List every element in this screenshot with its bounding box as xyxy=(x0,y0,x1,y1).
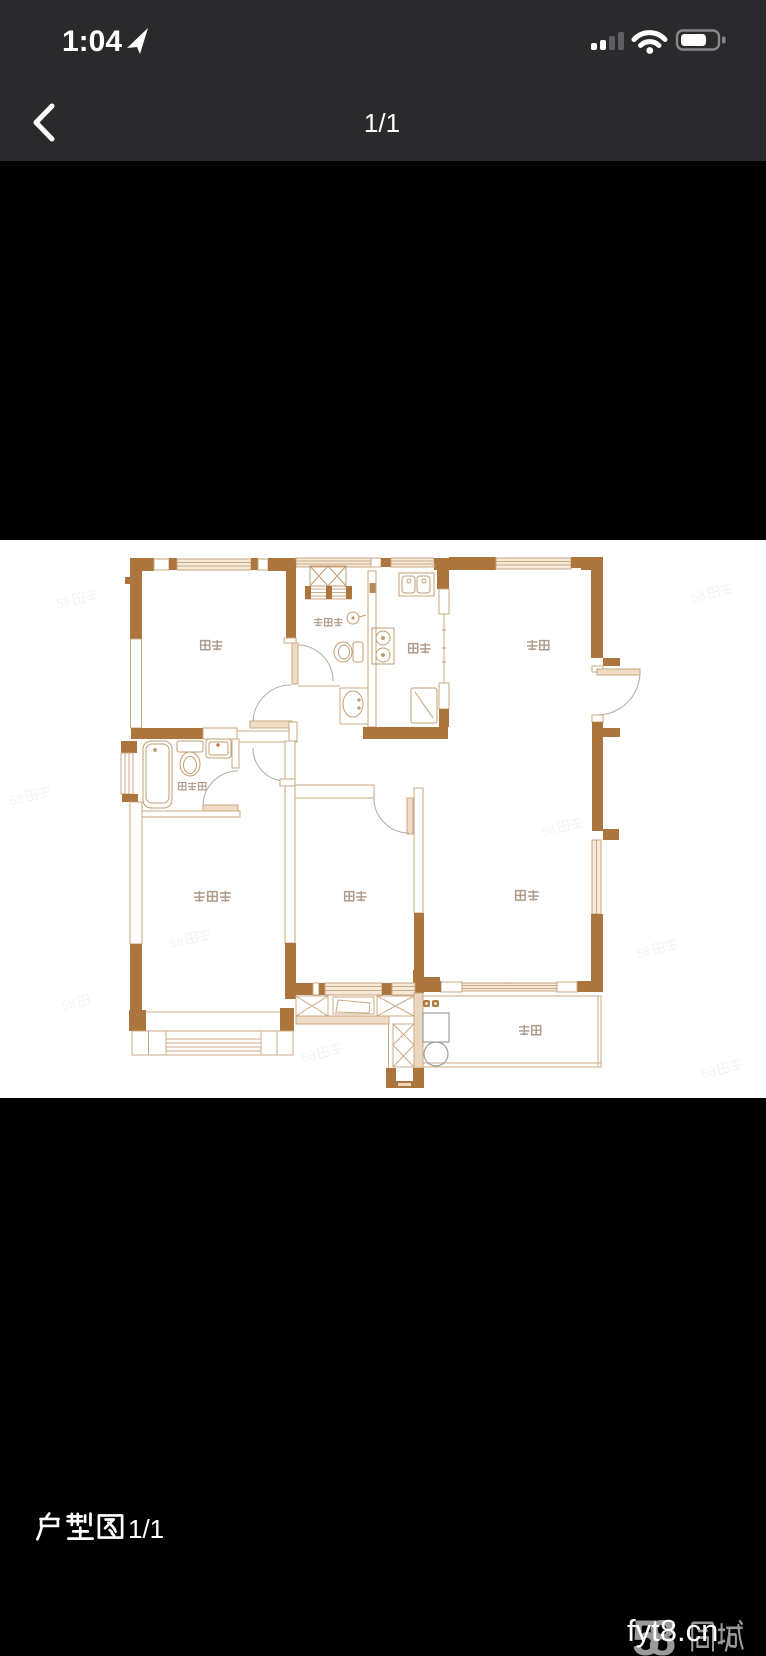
svg-text:1/1: 1/1 xyxy=(128,1514,164,1544)
svg-text:1:04: 1:04 xyxy=(62,25,122,58)
svg-text:1/1: 1/1 xyxy=(364,108,400,138)
svg-text:fyt8.cn: fyt8.cn xyxy=(627,1613,718,1648)
